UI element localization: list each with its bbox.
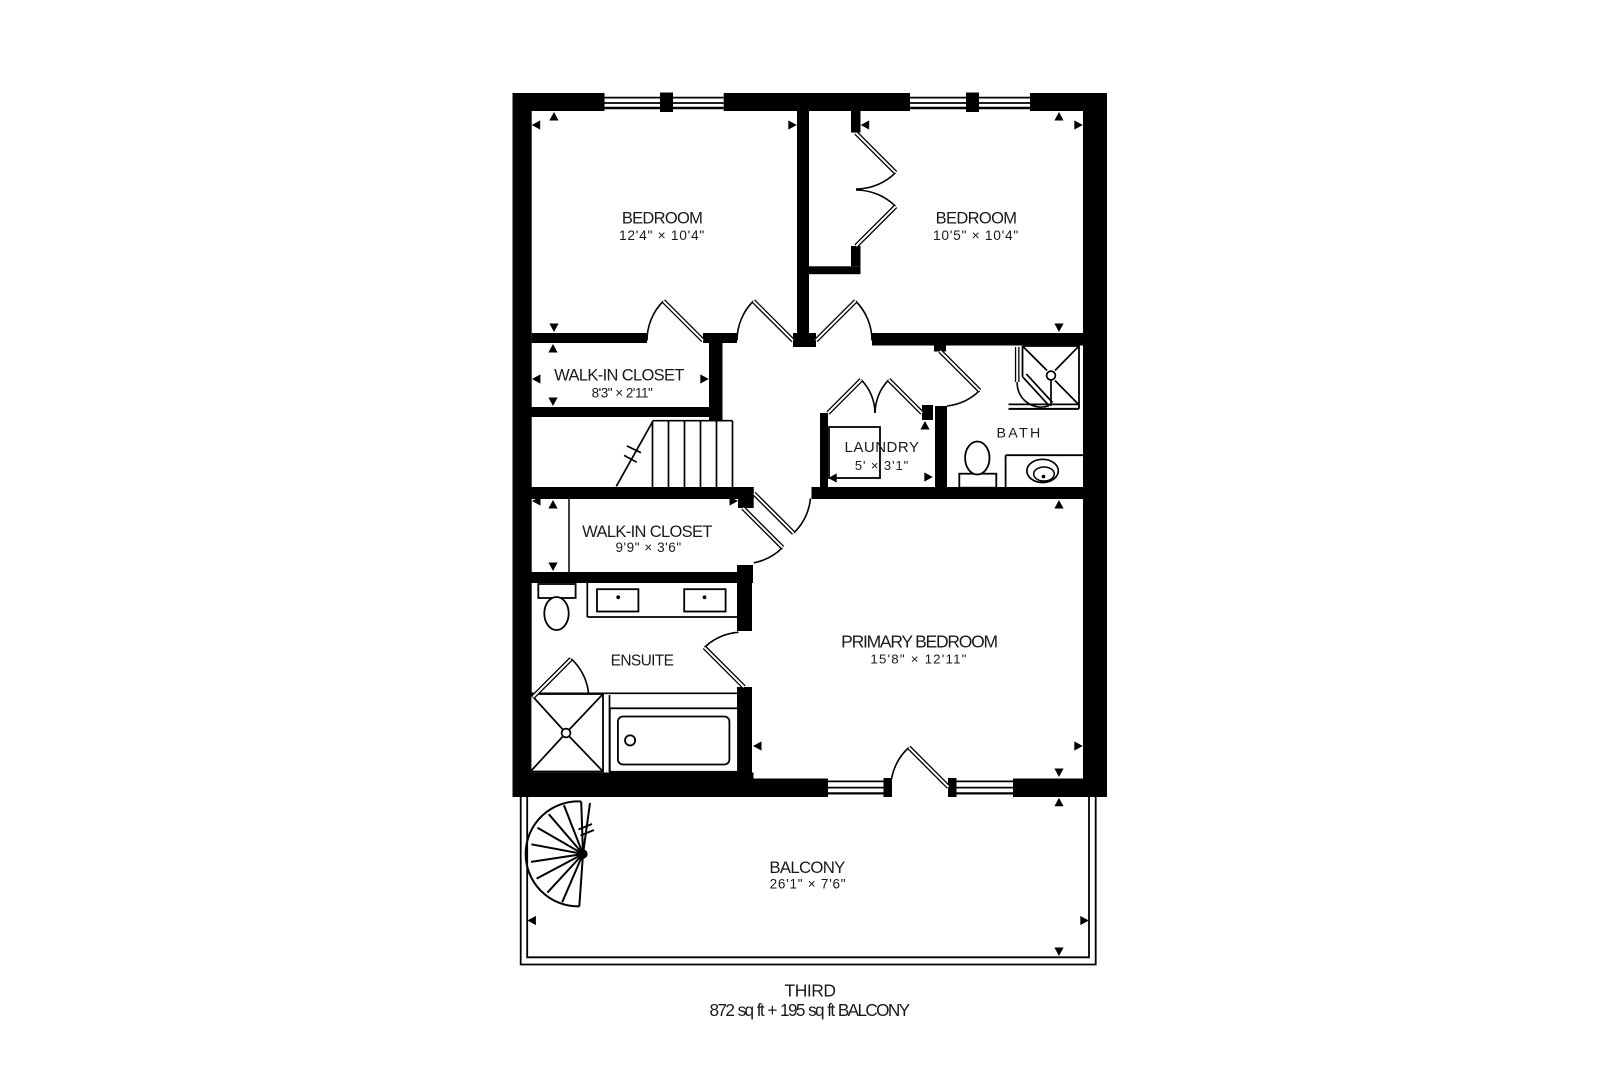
svg-text:26'1" × 7'6": 26'1" × 7'6" (770, 877, 847, 892)
svg-text:15'8" × 12'11": 15'8" × 12'11" (870, 652, 967, 667)
svg-text:WALK-IN CLOSET: WALK-IN CLOSET (582, 523, 712, 541)
svg-text:LAUNDRY: LAUNDRY (845, 439, 920, 456)
svg-text:THIRD: THIRD (785, 980, 836, 1000)
svg-text:BALCONY: BALCONY (769, 858, 845, 877)
svg-text:8'3" × 2'11": 8'3" × 2'11" (592, 386, 653, 401)
svg-text:BEDROOM: BEDROOM (936, 210, 1017, 228)
svg-text:5' × 3'1": 5' × 3'1" (855, 458, 909, 473)
svg-text:BATH: BATH (997, 426, 1043, 442)
svg-text:12'4" × 10'4": 12'4" × 10'4" (619, 228, 705, 243)
svg-text:PRIMARY BEDROOM: PRIMARY BEDROOM (841, 632, 997, 652)
svg-text:10'5" × 10'4": 10'5" × 10'4" (933, 228, 1019, 243)
svg-text:872 sq ft + 195 sq ft BALCONY: 872 sq ft + 195 sq ft BALCONY (710, 1000, 911, 1020)
svg-text:BEDROOM: BEDROOM (622, 210, 702, 228)
svg-text:WALK-IN CLOSET: WALK-IN CLOSET (554, 367, 684, 385)
svg-text:9'9" × 3'6": 9'9" × 3'6" (615, 540, 681, 555)
svg-text:ENSUITE: ENSUITE (611, 652, 674, 669)
